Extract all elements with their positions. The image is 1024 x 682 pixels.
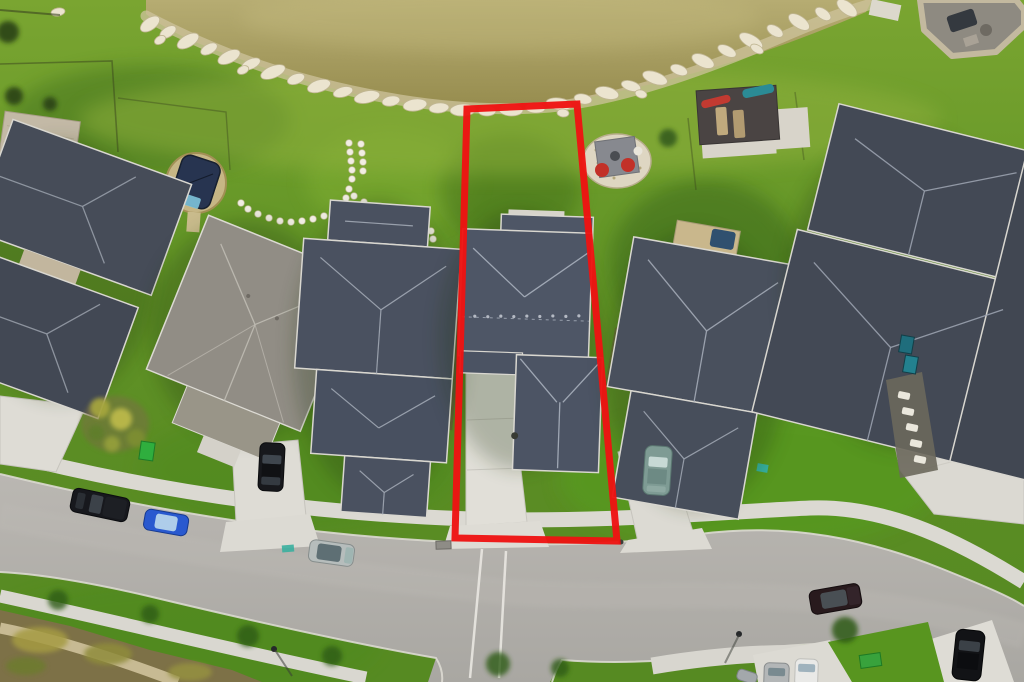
car-glass	[316, 543, 342, 562]
vehicle-silver-car	[764, 663, 790, 682]
small-teal-item	[282, 544, 295, 552]
lounger	[733, 110, 746, 139]
shrub	[88, 425, 104, 441]
car-roof	[647, 468, 667, 484]
stepping-stone-path	[346, 186, 353, 193]
red-chair	[595, 163, 609, 177]
house4-roof-main	[458, 229, 592, 360]
stepping-stone-path	[238, 200, 245, 207]
boulevard-tree	[141, 605, 159, 623]
shrub	[104, 436, 120, 452]
shrub	[110, 408, 132, 430]
scene-root	[0, 0, 1024, 682]
house3-roof-front	[341, 456, 431, 518]
garden-shrub	[6, 657, 46, 675]
hot-tub-path	[186, 212, 200, 233]
car-roof	[957, 652, 980, 670]
stepping-stone-path	[351, 193, 358, 200]
vehicle-teal-suv	[642, 445, 672, 496]
stepping-stone-path	[360, 168, 367, 175]
aerial-photo	[0, 0, 1024, 682]
stepping-stone-path	[358, 141, 365, 148]
boulevard-tree	[551, 659, 569, 677]
patio-chair	[980, 24, 992, 36]
car-roof	[261, 464, 281, 478]
stepping-stone-path	[359, 150, 366, 157]
car-windshield	[262, 455, 281, 465]
firepit-gravel-speckles	[613, 177, 616, 180]
garden-shrub	[12, 627, 68, 653]
vehicle-black-sedan	[258, 442, 285, 491]
garden-shrub	[84, 643, 132, 665]
aerial-photo-stage	[0, 0, 1024, 682]
stepping-stone-path	[266, 215, 273, 222]
boulevard-tree	[322, 646, 342, 666]
bush-topleft	[5, 87, 23, 105]
tree-bottom-right	[832, 617, 858, 643]
boulevard-tree	[237, 625, 259, 647]
recycle-bin	[903, 355, 919, 374]
garbage-bin-green	[139, 441, 155, 461]
lawn-mower	[859, 653, 882, 669]
red-chair	[621, 158, 635, 172]
vehicle-white-car	[795, 659, 819, 682]
stepping-stone-path	[288, 219, 295, 226]
car-windshield	[648, 456, 668, 467]
vehicle-black-suv	[951, 629, 985, 682]
stepping-stone-path	[347, 149, 354, 156]
car-windshield	[798, 664, 815, 673]
firepit-feature	[583, 134, 651, 188]
stepping-stone-path	[360, 159, 367, 166]
stepping-stone-path	[255, 211, 262, 218]
boulevard-tree	[48, 590, 68, 610]
stepping-stone-path	[310, 216, 317, 223]
stepping-stone-path	[348, 158, 355, 165]
storm-drain	[436, 541, 451, 550]
stepping-stone-path	[321, 213, 328, 220]
stepping-stone-path	[299, 218, 306, 225]
shrub	[90, 398, 110, 418]
house5-roof-front	[612, 391, 757, 520]
car-rear-glass	[261, 477, 280, 486]
garden-shrub	[168, 663, 212, 681]
car-glass	[768, 668, 785, 677]
stepping-stone-path	[346, 140, 353, 147]
house3-roof-lower	[311, 369, 453, 462]
house4-roof-eave	[460, 351, 523, 375]
stepping-stone-path	[245, 206, 252, 213]
white-side-table	[634, 147, 643, 156]
stepping-stone-path	[349, 167, 356, 174]
bush-right-of-lot	[659, 129, 677, 147]
bush-topleft	[43, 97, 57, 111]
lounger	[715, 107, 728, 136]
boulevard-tree	[486, 652, 510, 676]
firepit-bowl	[610, 151, 620, 161]
stepping-stone-path	[349, 176, 356, 183]
stepping-stone-path	[277, 218, 284, 225]
recycle-bin	[899, 335, 915, 354]
